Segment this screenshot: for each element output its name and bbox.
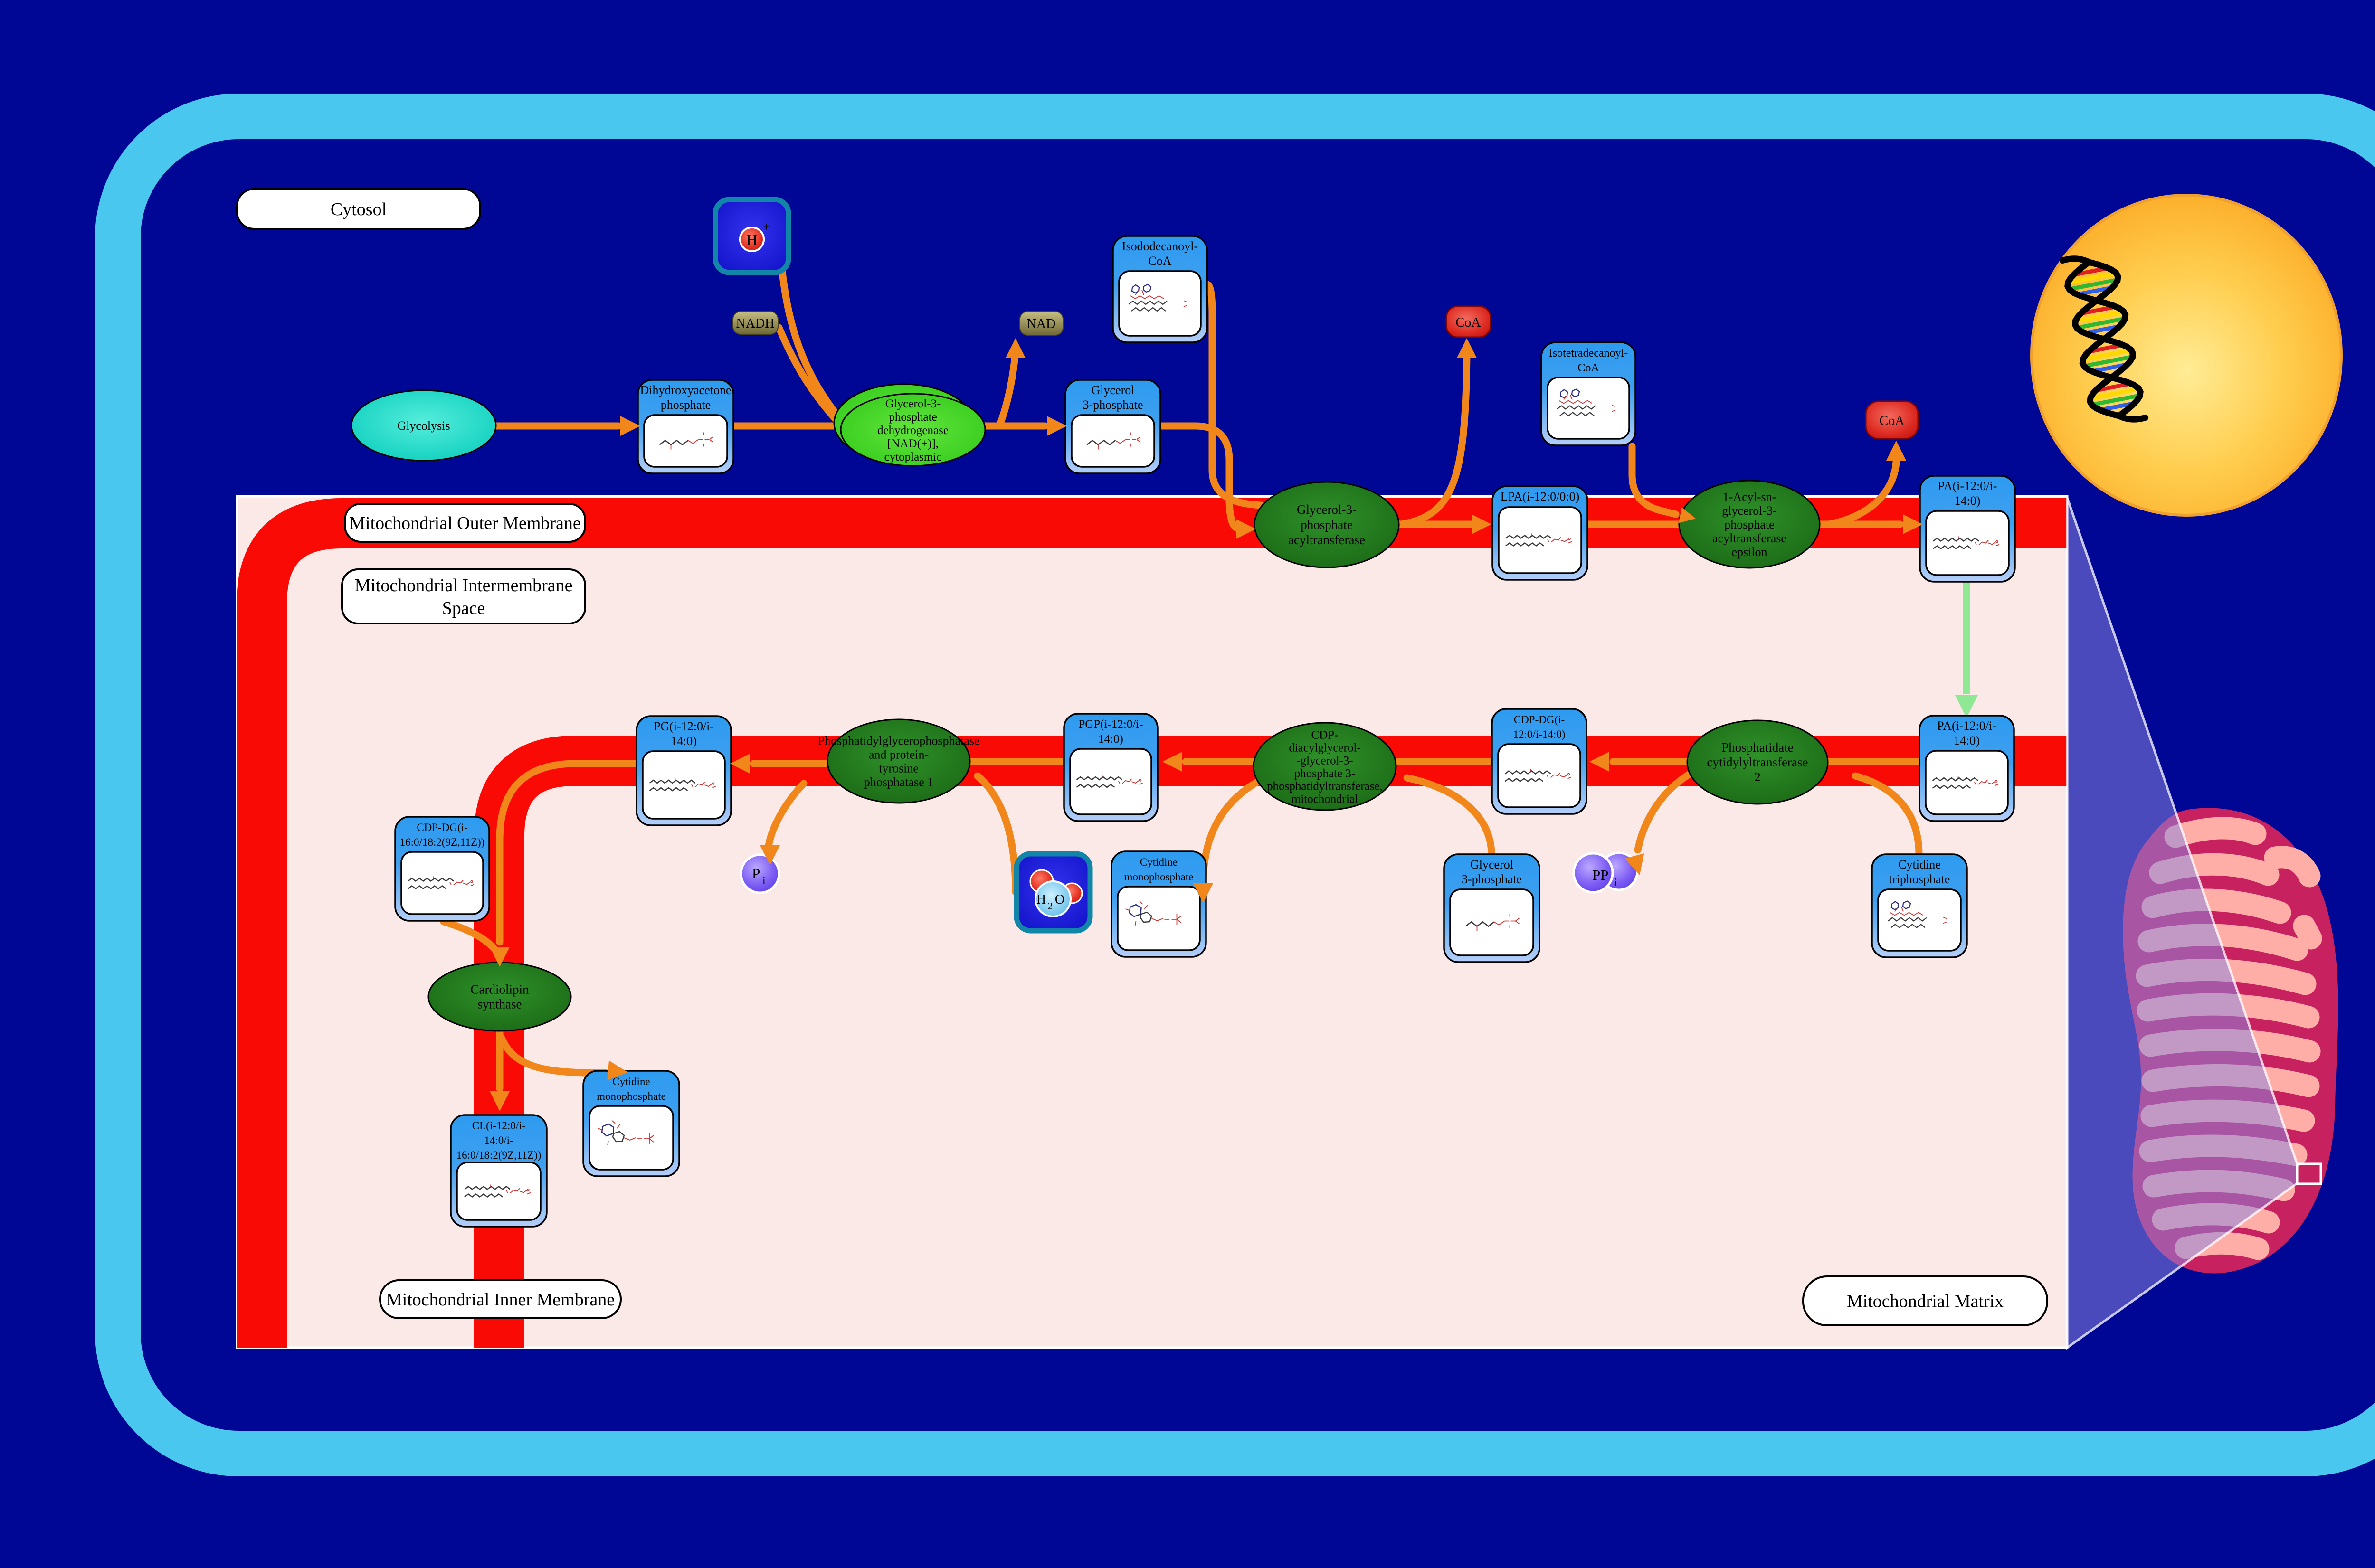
svg-text:Glycerol: Glycerol — [1470, 858, 1513, 871]
svg-text:14:0): 14:0) — [671, 734, 697, 748]
svg-text:16:0/18:2(9Z,11Z)): 16:0/18:2(9Z,11Z)) — [456, 1149, 541, 1161]
svg-text:3-phosphate: 3-phosphate — [1462, 872, 1522, 886]
svg-text:Phosphatidylglycerophosphatase: Phosphatidylglycerophosphatase — [818, 734, 980, 748]
svg-text:16:0/18:2(9Z,11Z)): 16:0/18:2(9Z,11Z)) — [400, 836, 485, 848]
svg-text:Cytidine: Cytidine — [1898, 858, 1941, 871]
svg-text:Glycerol: Glycerol — [1092, 383, 1135, 397]
svg-text:phosphate: phosphate — [1301, 518, 1352, 532]
svg-text:cytoplasmic: cytoplasmic — [884, 451, 942, 463]
svg-text:-glycerol-3-: -glycerol-3- — [1296, 755, 1353, 767]
svg-text:phosphate: phosphate — [1724, 518, 1774, 531]
svg-text:12:0/i-14:0): 12:0/i-14:0) — [1513, 728, 1566, 740]
svg-text:glycerol-3-: glycerol-3- — [1722, 504, 1777, 518]
svg-text:Cytidine: Cytidine — [1140, 856, 1178, 868]
svg-text:monophosphate: monophosphate — [597, 1090, 666, 1102]
svg-text:acyltransferase: acyltransferase — [1712, 531, 1786, 545]
svg-text:phosphatase 1: phosphatase 1 — [864, 775, 934, 789]
svg-text:Mitochondrial Outer Membrane: Mitochondrial Outer Membrane — [349, 513, 581, 533]
svg-text:synthase: synthase — [478, 997, 522, 1011]
svg-text:PG(i-12:0/i-: PG(i-12:0/i- — [654, 719, 714, 733]
svg-text:P: P — [752, 865, 760, 882]
svg-text:2: 2 — [1754, 770, 1761, 784]
svg-text:mitochondrial: mitochondrial — [1292, 793, 1358, 806]
svg-text:Dihydroxyacetone: Dihydroxyacetone — [640, 383, 731, 397]
svg-text:triphosphate: triphosphate — [1889, 872, 1950, 886]
svg-text:PGP(i-12:0/i-: PGP(i-12:0/i- — [1078, 718, 1143, 731]
svg-text:CoA: CoA — [1880, 414, 1905, 428]
svg-text:CDP-DG(i-: CDP-DG(i- — [417, 822, 467, 833]
svg-text:[NAD(+)],: [NAD(+)], — [887, 437, 939, 450]
svg-text:Cytosol: Cytosol — [331, 199, 387, 219]
svg-text:cytidylyltransferase: cytidylyltransferase — [1707, 755, 1808, 769]
svg-text:Mitochondrial Matrix: Mitochondrial Matrix — [1847, 1292, 2004, 1312]
svg-text:PA(i-12:0/i-: PA(i-12:0/i- — [1937, 719, 1996, 733]
svg-text:Mitochondrial Intermembrane: Mitochondrial Intermembrane — [354, 576, 572, 595]
svg-text:Glycerol-3-: Glycerol-3- — [1297, 502, 1357, 517]
svg-text:Glycolysis: Glycolysis — [397, 419, 450, 433]
svg-text:Mitochondrial Inner Membrane: Mitochondrial Inner Membrane — [386, 1290, 615, 1310]
svg-text:CDP-: CDP- — [1311, 729, 1339, 742]
svg-text:acyltransferase: acyltransferase — [1288, 533, 1365, 547]
svg-text:Space: Space — [442, 598, 485, 618]
svg-text:O: O — [1055, 892, 1064, 907]
svg-text:2: 2 — [1048, 900, 1053, 912]
svg-text:and protein-: and protein- — [869, 748, 929, 762]
svg-text:H: H — [1036, 892, 1046, 907]
svg-text:phosphate: phosphate — [889, 411, 937, 424]
svg-text:14:0): 14:0) — [1098, 733, 1123, 746]
svg-text:+: + — [763, 220, 770, 234]
svg-text:NAD: NAD — [1027, 317, 1056, 331]
svg-text:i: i — [762, 875, 766, 887]
svg-text:LPA(i-12:0/0:0): LPA(i-12:0/0:0) — [1501, 490, 1580, 503]
svg-text:CoA: CoA — [1456, 315, 1482, 330]
svg-text:CDP-DG(i-: CDP-DG(i- — [1514, 714, 1565, 726]
svg-text:monophosphate: monophosphate — [1124, 871, 1194, 883]
svg-text:CoA: CoA — [1148, 254, 1171, 268]
svg-text:phosphate: phosphate — [661, 398, 711, 412]
svg-text:Glycerol-3-: Glycerol-3- — [885, 397, 941, 410]
svg-text:dehydrogenase: dehydrogenase — [877, 424, 949, 437]
svg-text:phosphate 3-: phosphate 3- — [1294, 767, 1355, 780]
svg-text:CL(i-12:0/i-: CL(i-12:0/i- — [472, 1120, 525, 1132]
svg-text:1-Acyl-sn-: 1-Acyl-sn- — [1723, 490, 1776, 504]
svg-text:PA(i-12:0/i-: PA(i-12:0/i- — [1938, 479, 1997, 493]
svg-text:Phosphatidate: Phosphatidate — [1721, 740, 1793, 755]
svg-text:14:0): 14:0) — [1954, 734, 1980, 747]
svg-text:Cytidine: Cytidine — [612, 1076, 650, 1087]
svg-text:diacylglycerol-: diacylglycerol- — [1289, 742, 1360, 755]
svg-text:H: H — [746, 232, 758, 249]
svg-text:tyrosine: tyrosine — [879, 762, 919, 775]
svg-text:PP: PP — [1592, 867, 1608, 883]
svg-text:Isododecanoyl-: Isododecanoyl- — [1122, 239, 1198, 253]
svg-text:14:0/i-: 14:0/i- — [484, 1134, 513, 1146]
svg-text:Isotetradecanoyl-: Isotetradecanoyl- — [1549, 347, 1628, 359]
svg-text:i: i — [1614, 877, 1617, 889]
svg-text:phosphatidyltransferase,: phosphatidyltransferase, — [1267, 780, 1383, 793]
svg-text:3-phosphate: 3-phosphate — [1083, 398, 1143, 412]
svg-text:14:0): 14:0) — [1955, 494, 1981, 508]
svg-text:CoA: CoA — [1577, 362, 1599, 374]
svg-text:Cardiolipin: Cardiolipin — [471, 982, 529, 997]
svg-text:epsilon: epsilon — [1731, 545, 1767, 559]
svg-text:NADH: NADH — [736, 316, 775, 331]
